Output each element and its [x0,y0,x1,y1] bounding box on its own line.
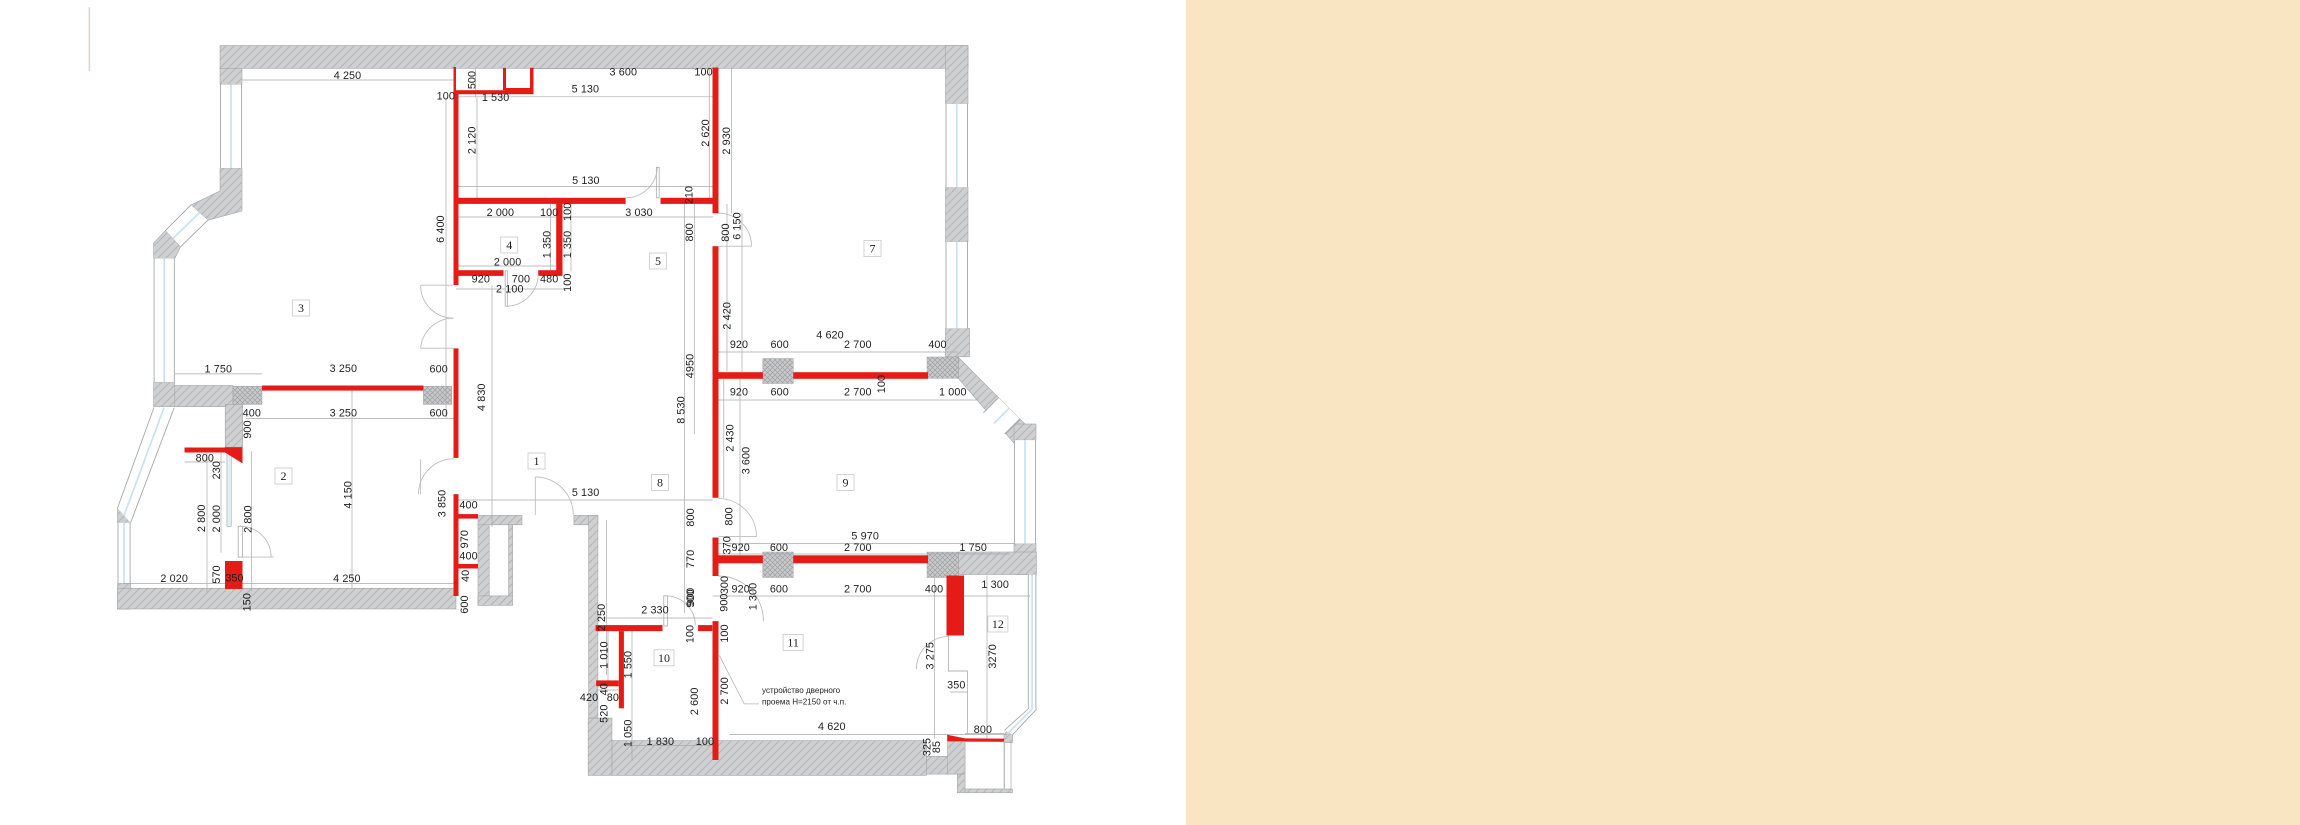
svg-text:2 700: 2 700 [844,542,872,554]
svg-text:4 250: 4 250 [334,70,362,82]
svg-text:5 130: 5 130 [572,487,600,499]
svg-text:100: 100 [694,67,712,79]
svg-text:350: 350 [947,680,965,692]
svg-text:2 930: 2 930 [721,127,733,155]
svg-text:2 120: 2 120 [466,127,478,155]
svg-text:800: 800 [685,508,697,526]
svg-text:2 700: 2 700 [844,339,872,351]
svg-text:150: 150 [241,593,253,611]
svg-text:4 250: 4 250 [333,573,361,585]
svg-text:4: 4 [506,238,512,252]
svg-text:600: 600 [459,595,471,613]
svg-text:800: 800 [974,724,992,736]
svg-text:1 000: 1 000 [939,387,967,399]
svg-text:проема Н=2150 от ч.п.: проема Н=2150 от ч.п. [762,698,846,707]
svg-text:3 250: 3 250 [330,407,358,419]
svg-text:400: 400 [925,584,943,596]
svg-text:6 400: 6 400 [435,215,447,243]
svg-text:3 030: 3 030 [625,207,653,219]
svg-text:3 600: 3 600 [740,447,752,475]
svg-text:600: 600 [771,339,789,351]
svg-text:2 620: 2 620 [700,119,712,147]
svg-text:7: 7 [870,242,876,256]
svg-text:2 800: 2 800 [196,505,208,533]
svg-text:100: 100 [562,274,574,292]
svg-text:устройство дверного: устройство дверного [762,686,841,695]
svg-text:920: 920 [472,274,490,286]
svg-text:3270: 3270 [987,644,999,668]
svg-text:5 970: 5 970 [851,530,879,542]
svg-text:3: 3 [298,301,304,315]
svg-text:100: 100 [685,625,697,643]
svg-text:800: 800 [720,223,732,241]
svg-text:2 000: 2 000 [211,505,223,533]
svg-text:2 020: 2 020 [160,573,188,585]
svg-text:100: 100 [562,203,574,221]
svg-text:400: 400 [243,407,261,419]
svg-text:85: 85 [931,741,943,753]
svg-text:2 700: 2 700 [844,584,872,596]
svg-text:100: 100 [696,736,714,748]
svg-text:100: 100 [719,624,731,642]
svg-text:570: 570 [211,565,223,583]
svg-text:2 700: 2 700 [719,677,731,705]
svg-text:600: 600 [430,364,448,376]
svg-text:4 150: 4 150 [343,481,355,509]
svg-text:920: 920 [730,387,748,399]
svg-text:900: 900 [718,593,730,611]
svg-text:600: 600 [770,584,788,596]
svg-text:210: 210 [684,186,696,204]
svg-text:2 800: 2 800 [242,505,254,533]
svg-text:300: 300 [719,576,731,594]
svg-text:8 530: 8 530 [676,396,688,424]
svg-text:1 350: 1 350 [562,231,574,259]
svg-text:11: 11 [787,636,799,650]
svg-text:5 130: 5 130 [572,84,600,96]
svg-text:420: 420 [580,692,598,704]
svg-text:1 350: 1 350 [542,231,554,259]
svg-text:770: 770 [685,550,697,568]
svg-text:350: 350 [225,573,243,585]
svg-text:2: 2 [281,469,287,483]
svg-text:10: 10 [658,651,670,665]
svg-text:4 620: 4 620 [818,721,846,733]
svg-text:500: 500 [467,71,479,89]
svg-text:900: 900 [685,589,697,607]
svg-text:8: 8 [657,476,663,490]
svg-text:1 750: 1 750 [205,364,233,376]
svg-text:230: 230 [211,461,223,479]
svg-text:2 100: 2 100 [496,283,524,295]
svg-text:800: 800 [723,507,735,525]
svg-text:3 850: 3 850 [437,490,449,518]
svg-text:2 000: 2 000 [494,256,522,268]
svg-text:4 830: 4 830 [476,383,488,411]
svg-text:900: 900 [242,420,254,438]
svg-text:3 600: 3 600 [610,67,638,79]
svg-text:4950: 4950 [684,354,696,378]
svg-text:1 300: 1 300 [747,583,759,611]
svg-text:2 000: 2 000 [487,207,515,219]
svg-text:1 300: 1 300 [981,579,1009,591]
svg-text:920: 920 [732,542,750,554]
svg-text:100: 100 [437,91,455,103]
svg-text:1 050: 1 050 [622,720,634,748]
svg-text:2 420: 2 420 [721,302,733,330]
svg-text:1 750: 1 750 [959,542,987,554]
svg-text:3 250: 3 250 [330,363,358,375]
svg-text:920: 920 [730,339,748,351]
svg-text:600: 600 [771,387,789,399]
svg-text:5 130: 5 130 [572,175,600,187]
svg-text:520: 520 [599,705,611,723]
svg-text:600: 600 [770,542,788,554]
svg-text:400: 400 [459,499,477,511]
svg-text:100: 100 [540,207,558,219]
svg-text:4 620: 4 620 [816,330,844,342]
svg-text:2 250: 2 250 [596,604,608,632]
svg-text:1 010: 1 010 [599,641,611,669]
svg-text:1 530: 1 530 [482,92,510,104]
svg-text:2 330: 2 330 [641,605,669,617]
svg-text:370: 370 [721,536,733,554]
svg-text:12: 12 [992,617,1004,631]
svg-text:400: 400 [459,551,477,563]
svg-text:2 600: 2 600 [689,688,701,716]
svg-text:400: 400 [928,339,946,351]
svg-text:480: 480 [540,274,558,286]
svg-text:1: 1 [534,454,540,468]
svg-text:9: 9 [843,476,849,490]
svg-text:40: 40 [599,683,611,695]
svg-text:600: 600 [430,407,448,419]
svg-text:800: 800 [684,223,696,241]
svg-text:1 550: 1 550 [622,651,634,679]
svg-text:40: 40 [460,570,472,582]
svg-text:1 830: 1 830 [647,736,675,748]
svg-text:5: 5 [655,254,661,268]
svg-text:3 275: 3 275 [924,642,936,670]
svg-text:100: 100 [876,375,888,393]
svg-text:2 700: 2 700 [844,387,872,399]
svg-text:970: 970 [459,530,471,548]
svg-text:6 150: 6 150 [731,212,743,240]
svg-text:2 430: 2 430 [725,424,737,452]
